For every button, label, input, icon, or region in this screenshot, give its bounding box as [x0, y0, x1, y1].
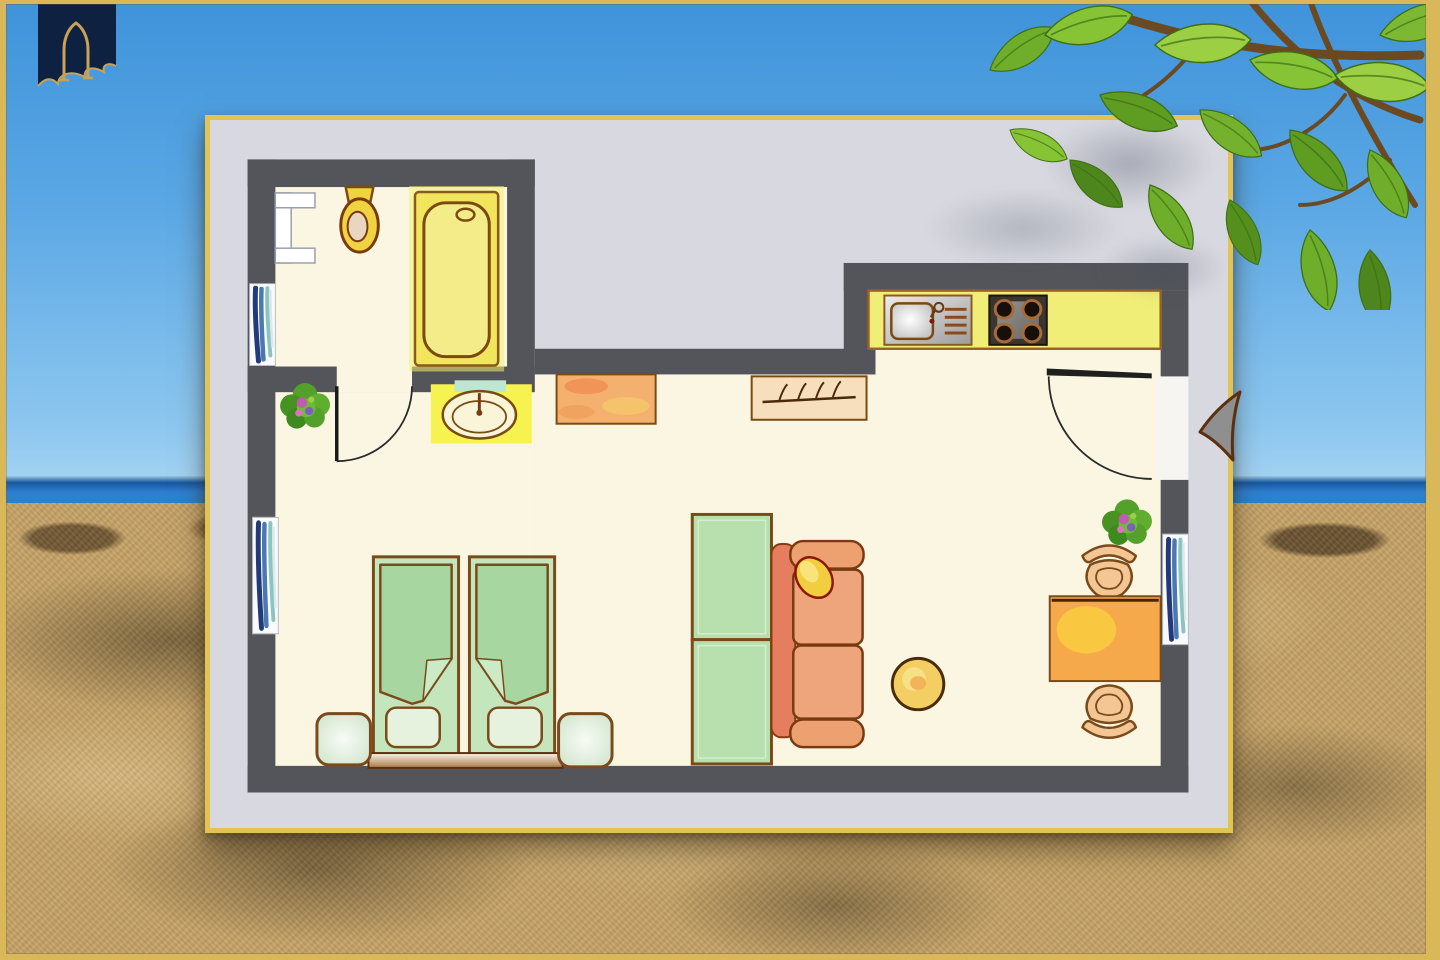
sofa [771, 541, 863, 747]
wardrobe [692, 514, 771, 763]
headboard [368, 753, 562, 768]
entrance-doorway [1156, 376, 1189, 480]
washbasin [431, 380, 532, 443]
leaves-cluster [982, 0, 1440, 310]
wall-segment [248, 159, 535, 187]
bathtub [409, 186, 504, 371]
pouf [892, 658, 943, 709]
beach-scene [0, 0, 1440, 960]
entrance-arrow-icon [1196, 386, 1246, 466]
arch-pennant-logo [28, 0, 123, 112]
wall-segment [248, 766, 1189, 793]
wall-segment [248, 367, 337, 393]
dining-chair [1082, 686, 1135, 738]
tree-branch [950, 0, 1440, 310]
coat-rack [752, 376, 867, 419]
bed-pillow [488, 708, 541, 747]
dining-chair [1082, 545, 1135, 597]
sofa-armrest [790, 720, 863, 748]
sofa-cushion [793, 646, 862, 719]
wall-segment [535, 349, 876, 375]
nightstand [559, 714, 612, 767]
wall-segment [507, 159, 535, 374]
dresser [557, 374, 656, 423]
bed-pillow [386, 708, 439, 747]
wall-segment [248, 159, 276, 792]
nightstand [317, 714, 370, 765]
bedroom-window [253, 517, 279, 633]
bathroom-window [250, 284, 276, 366]
dining-window [1163, 534, 1189, 644]
